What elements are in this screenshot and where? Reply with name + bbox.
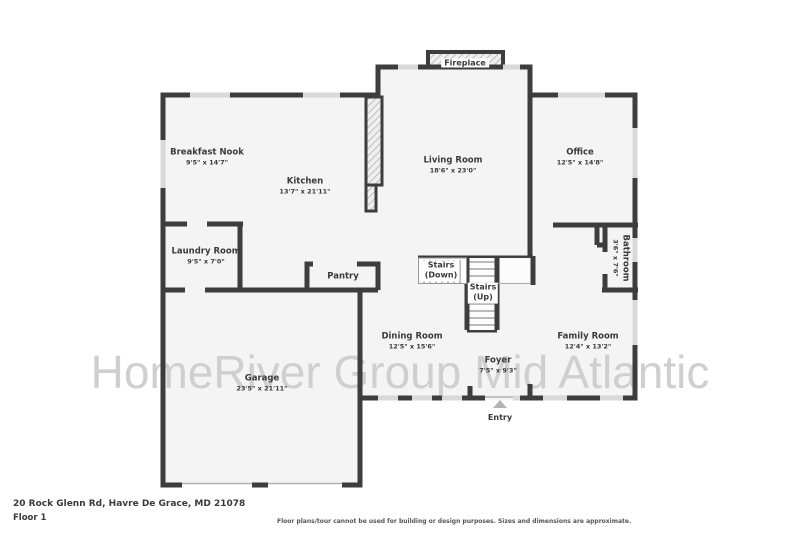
room-label-breakfast-nook: Breakfast Nook 9'5" x 14'7" — [170, 148, 244, 167]
floorplan-svg — [0, 0, 800, 533]
floorplan-page: HomeRiver Group Mid Atlantic Breakfast N… — [0, 0, 800, 533]
room-dims: 7'5" x 9'3" — [479, 366, 517, 374]
room-name: Laundry Room — [171, 247, 240, 258]
room-name: Office — [557, 148, 604, 159]
property-address: 20 Rock Glenn Rd, Havre De Grace, MD 210… — [13, 499, 245, 509]
exterior-walls — [163, 67, 635, 485]
room-name: Kitchen — [279, 177, 330, 188]
room-dims: 3'6" x 7'6" — [612, 234, 620, 281]
room-name: Garage — [236, 374, 287, 385]
room-dims: 12'5" x 15'6" — [381, 342, 442, 350]
room-label-pantry: Pantry — [327, 272, 359, 283]
room-dims: 18'6" x 23'0" — [424, 166, 483, 174]
room-label-foyer: Foyer 7'5" x 9'3" — [479, 356, 517, 375]
room-dims: 12'5" x 14'8" — [557, 158, 604, 166]
watermark-text: HomeRiver Group Mid Atlantic — [91, 345, 710, 399]
fireplace-label: Fireplace — [441, 59, 489, 68]
room-label-family-room: Family Room 12'4" x 13'2" — [557, 332, 618, 351]
entry-arrow-icon — [493, 400, 507, 408]
disclaimer-text: Floor plans/tour cannot be used for buil… — [277, 518, 631, 525]
room-name: Foyer — [479, 356, 517, 367]
entry-label: Entry — [488, 413, 512, 422]
room-name: Living Room — [424, 156, 483, 167]
room-name: Pantry — [327, 272, 359, 283]
stairs-up-label: Stairs (Up) — [468, 283, 498, 304]
room-label-laundry-room: Laundry Room 9'5" x 7'0" — [171, 247, 240, 266]
room-label-garage: Garage 23'5" x 21'11" — [236, 374, 287, 393]
stairs-down-label: Stairs (Down) — [423, 261, 460, 282]
room-label-office: Office 12'5" x 14'8" — [557, 148, 604, 167]
room-dims: 13'7" x 21'11" — [279, 187, 330, 195]
room-name: Family Room — [557, 332, 618, 343]
room-label-living-room: Living Room 18'6" x 23'0" — [424, 156, 483, 175]
room-dims: 9'5" x 7'0" — [171, 257, 240, 265]
room-name: Breakfast Nook — [170, 148, 244, 159]
room-dims: 23'5" x 21'11" — [236, 384, 287, 392]
room-dims: 9'5" x 14'7" — [170, 158, 244, 166]
room-label-bathroom: Bathroom 3'6" x 7'6" — [612, 234, 631, 281]
room-label-kitchen: Kitchen 13'7" x 21'11" — [279, 177, 330, 196]
room-dims: 12'4" x 13'2" — [557, 342, 618, 350]
room-name: Bathroom — [620, 234, 631, 281]
floor-label: Floor 1 — [13, 513, 46, 523]
room-name: Dining Room — [381, 332, 442, 343]
room-label-dining-room: Dining Room 12'5" x 15'6" — [381, 332, 442, 351]
